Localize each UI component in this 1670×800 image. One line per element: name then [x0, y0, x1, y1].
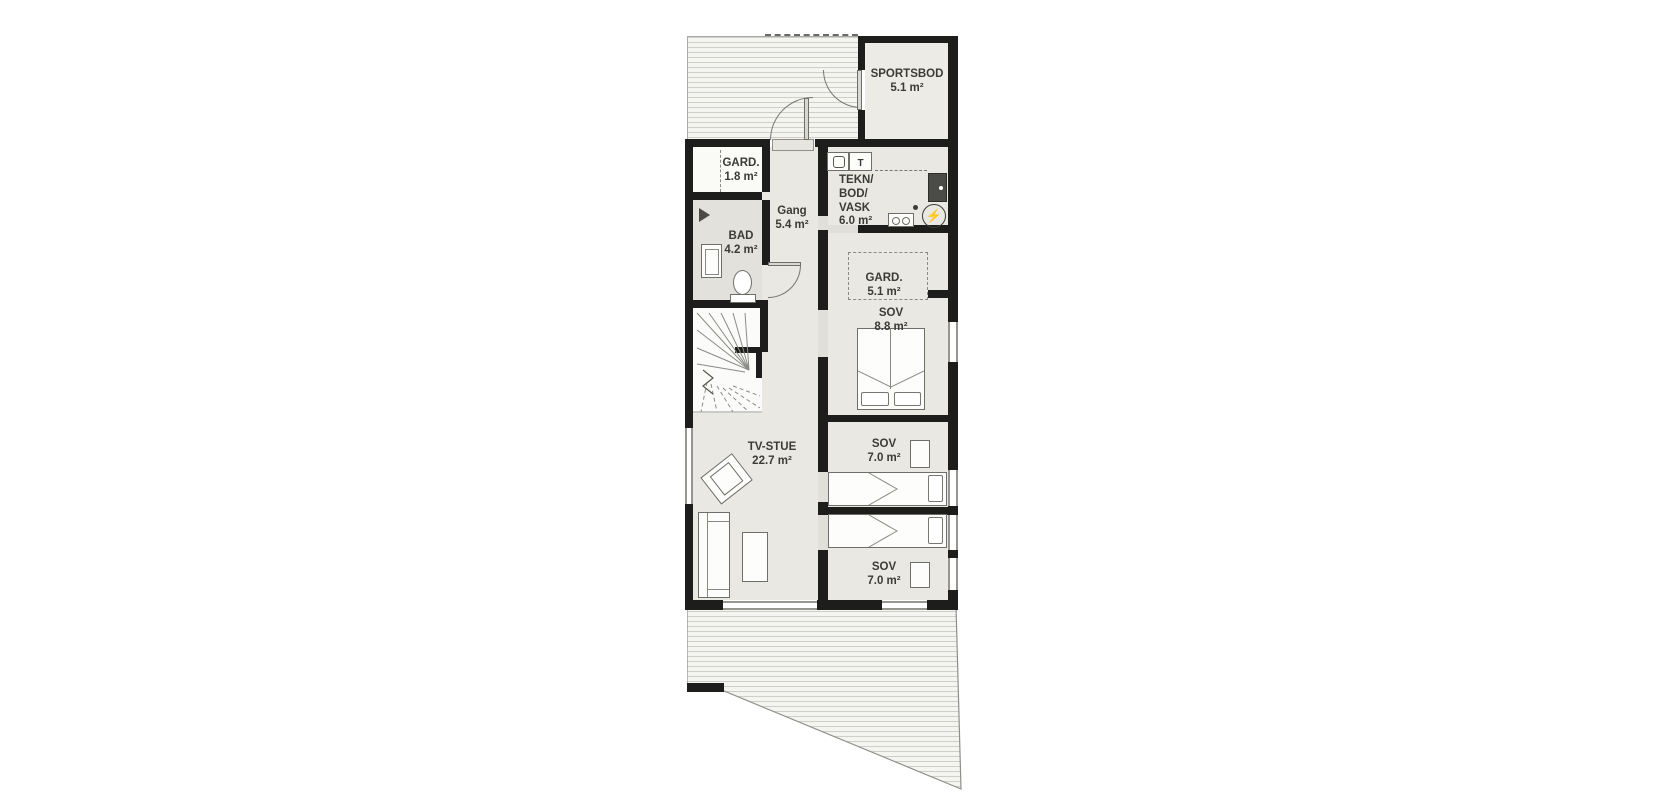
dryer-icon: T — [849, 152, 872, 171]
shower-icon — [699, 208, 710, 222]
wall-bottom-a — [685, 600, 723, 610]
room-label-bad: BAD 4.2 m² — [724, 230, 757, 258]
room-label-gang: Gang 5.4 m² — [775, 205, 808, 233]
sink-icon — [701, 244, 722, 278]
gard-sov-wall-stub — [928, 290, 948, 298]
window-sov-bottom-a — [948, 515, 958, 550]
nightstand-mid — [910, 440, 930, 468]
gard-entry-wall-bottom — [693, 192, 762, 200]
pillow — [928, 517, 943, 544]
washing-machine-icon — [827, 152, 849, 171]
sov-divider-wall-1 — [818, 415, 958, 422]
room-label-sportsbod: SPORTSBOD 5.1 m² — [871, 68, 944, 96]
window-sov-bottom-b — [948, 558, 958, 590]
window-sov-mid — [948, 470, 958, 506]
spine-wall-f — [818, 550, 828, 600]
spine-wall-b — [818, 225, 828, 310]
room-label-tv-stue: TV-STUE 22.7 m² — [748, 441, 797, 469]
door-opening-sov-bottom — [818, 515, 828, 550]
toilet-icon — [730, 270, 756, 304]
bad-wall-right — [762, 200, 770, 265]
coffee-table — [742, 532, 768, 582]
sportsbod-wall-top — [858, 36, 955, 43]
gard-entry-wall-right — [762, 147, 770, 192]
nightstand-bottom — [910, 562, 930, 588]
wall-bottom-b — [817, 600, 882, 610]
outlet-dot-icon — [913, 205, 918, 210]
dryer-letter: T — [857, 158, 863, 169]
double-bed — [857, 328, 925, 410]
deck-wall-stub — [687, 683, 724, 692]
water-heater-icon — [928, 173, 947, 202]
spine-wall-c — [818, 357, 828, 415]
room-label-gard-entry: GARD. 1.8 m² — [722, 157, 759, 185]
single-bed-bottom — [828, 514, 947, 548]
bed-fold-lines — [858, 329, 924, 391]
wall-left-lower — [685, 504, 693, 608]
wall-right-a — [948, 147, 958, 322]
wall-left-upper — [685, 147, 693, 428]
wall-top-left — [685, 139, 770, 147]
pillow — [928, 475, 943, 502]
window-sov-bottom-south — [882, 601, 927, 610]
roof-overhang-dashed-line — [765, 34, 858, 36]
pillow — [894, 392, 921, 406]
room-label-tekn: TEKN/ BOD/ VASK 6.0 m² — [839, 174, 874, 229]
window-sov-main — [948, 322, 958, 362]
door-opening-tekn — [818, 216, 828, 230]
sportsbod-wall-left-upper — [858, 36, 865, 70]
room-label-gard-sov: GARD. 5.1 m² — [865, 272, 902, 300]
room-label-sov-main: SOV 8.8 m² — [874, 307, 907, 335]
room-label-sov-bottom: SOV 7.0 m² — [867, 561, 900, 589]
bolt-glyph: ⚡ — [926, 208, 942, 223]
deck-bottom-outline — [687, 606, 963, 792]
sportsbod-wall-left-lower — [858, 110, 865, 139]
door-opening-sov-mid — [818, 472, 828, 502]
room-label-sov-mid: SOV 7.0 m² — [867, 438, 900, 466]
single-bed-mid — [828, 472, 947, 506]
entry-door-leaf — [804, 98, 809, 140]
sportsbod-wall-right — [948, 36, 958, 147]
entry-threshold — [772, 139, 814, 151]
window-tvstue-left — [685, 428, 693, 504]
door-opening-sov-main — [818, 310, 828, 357]
wall-right-e — [948, 590, 958, 610]
tekn-dashed-line — [875, 170, 927, 171]
window-tvstue-bottom — [723, 601, 817, 610]
electrical-panel-icon: ⚡ — [922, 204, 946, 228]
wall-right-d — [948, 550, 958, 558]
gard-entry-dashed-line — [720, 150, 721, 192]
wall-top-right — [815, 139, 958, 147]
spine-wall-d — [818, 422, 828, 472]
sportsbod-door-leaf — [857, 70, 862, 110]
stairs — [693, 308, 762, 413]
floor-plan-canvas: { "plan": { "type": "floor-plan", "rooms… — [0, 0, 1670, 800]
pillow — [861, 392, 889, 406]
laundry-sink-icon — [888, 213, 914, 227]
sofa — [698, 512, 730, 598]
bad-door-leaf — [768, 262, 801, 266]
